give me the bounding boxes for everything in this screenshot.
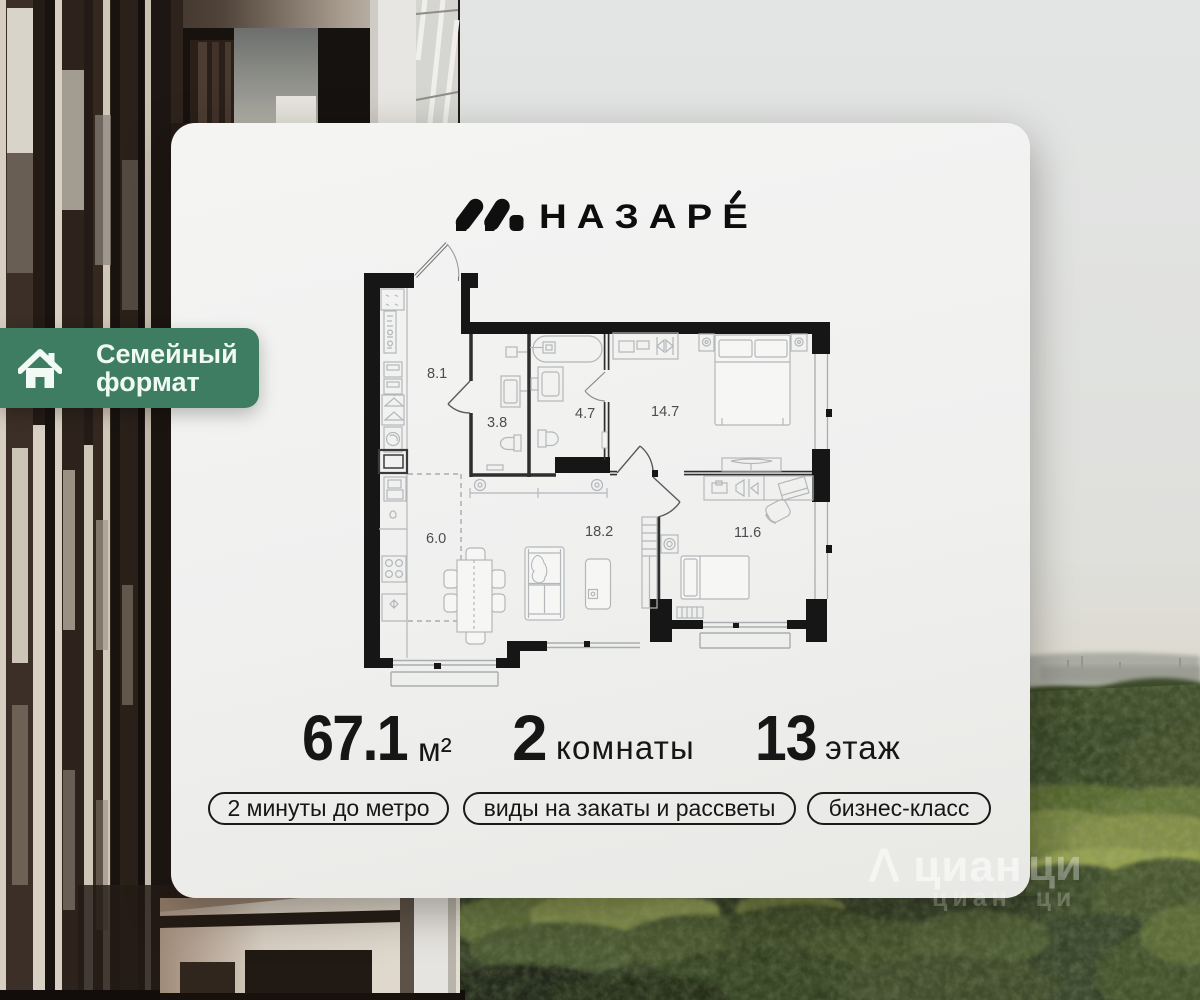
svg-text:11.6: 11.6	[734, 525, 761, 541]
svg-text:6.0: 6.0	[426, 531, 446, 547]
svg-text:8.1: 8.1	[427, 366, 447, 382]
svg-text:14.7: 14.7	[651, 404, 679, 420]
svg-text:4.7: 4.7	[575, 406, 595, 422]
svg-text:3.8: 3.8	[487, 415, 507, 431]
svg-text:18.2: 18.2	[585, 524, 613, 540]
